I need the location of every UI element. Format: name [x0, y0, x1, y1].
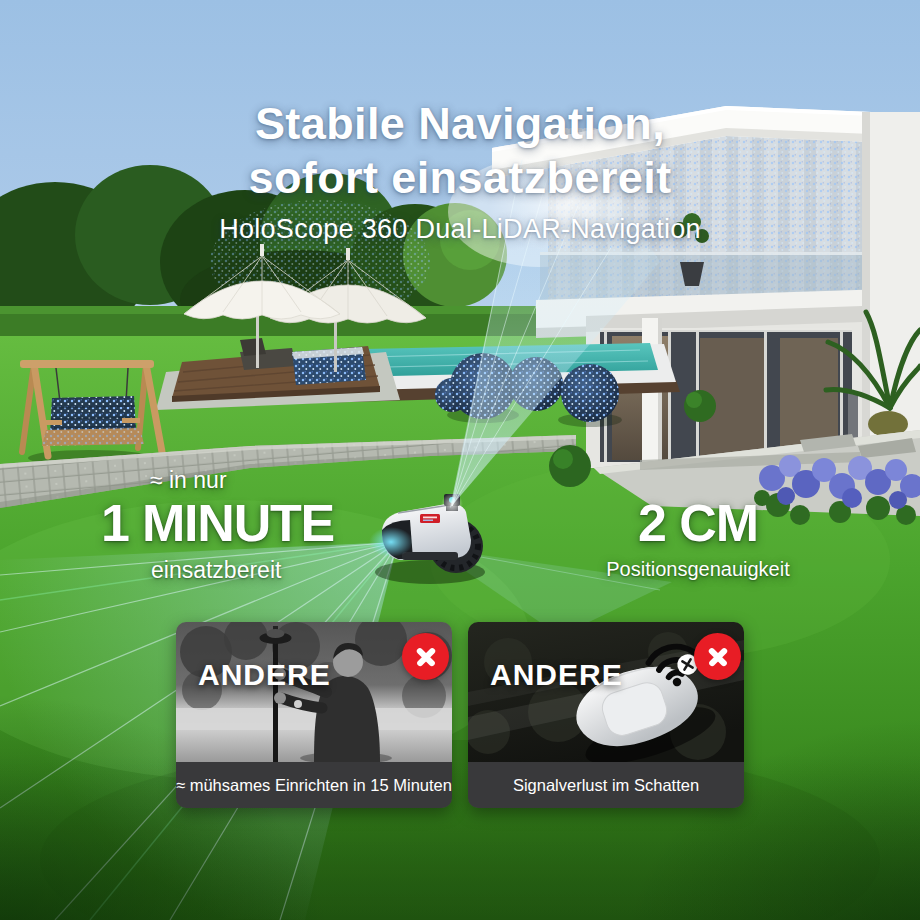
x-badge-icon [694, 633, 741, 680]
precision-stat-suffix: Positionsgenauigkeit [598, 558, 798, 581]
comparison-card-signal-loss: ANDERE Signalverlust im Schatten [468, 622, 744, 808]
title-line-2: sofort einsatzbereit [0, 151, 920, 205]
header: Stabile Navigation, sofort einsatzbereit… [0, 97, 920, 245]
lidar-pointcloud-spa [292, 347, 366, 385]
subtitle: HoloScope 360 Dual-LiDAR-Navigation [0, 214, 920, 245]
setup-stat-suffix: einsatzbereit [151, 557, 281, 584]
card-label: ANDERE [198, 658, 331, 692]
setup-stat-value: 1 MINUTE [101, 493, 334, 553]
promo-image: Stabile Navigation, sofort einsatzbereit… [0, 0, 920, 920]
title-line-1: Stabile Navigation, [0, 97, 920, 151]
lidar-pointcloud-swing-seat [50, 396, 136, 434]
caption-bar: ≈ mühsames Einrichten in 15 Minuten [176, 762, 452, 808]
setup-stat-prefix: ≈ in nur [150, 467, 227, 494]
precision-stat-value: 2 CM [600, 493, 796, 553]
x-badge-icon [402, 633, 449, 680]
comparison-card-rtk-setup: ANDERE ≈ mühsames Einrichten in 15 Minut… [176, 622, 452, 808]
card-label: ANDERE [490, 658, 623, 692]
caption-bar: Signalverlust im Schatten [468, 762, 744, 808]
